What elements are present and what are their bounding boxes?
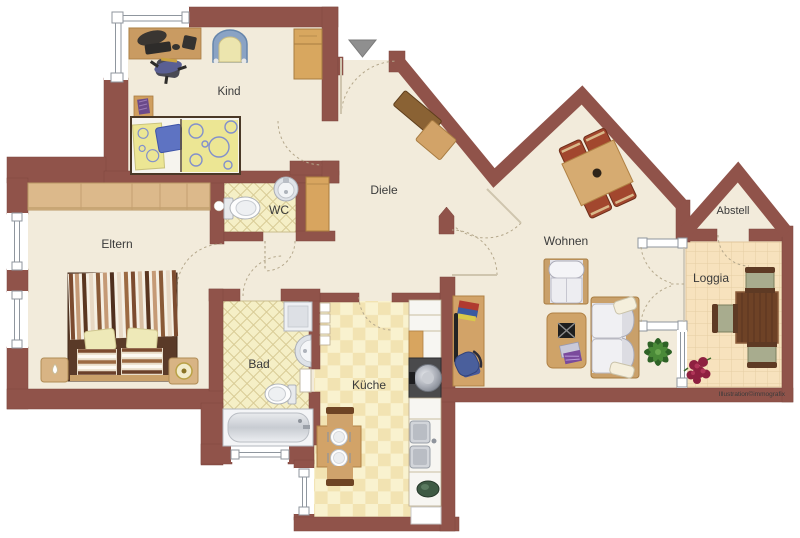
svg-text:Abstell: Abstell bbox=[716, 205, 749, 217]
svg-text:Kind: Kind bbox=[217, 86, 240, 98]
svg-text:Loggia: Loggia bbox=[693, 271, 729, 285]
svg-text:WC: WC bbox=[269, 203, 289, 217]
svg-text:Eltern: Eltern bbox=[101, 237, 132, 251]
svg-text:Diele: Diele bbox=[370, 183, 398, 197]
svg-text:Bad: Bad bbox=[248, 357, 269, 371]
svg-text:Illustration©immografix: Illustration©immografix bbox=[719, 390, 786, 398]
svg-text:Küche: Küche bbox=[352, 378, 386, 392]
svg-text:Wohnen: Wohnen bbox=[544, 234, 588, 248]
